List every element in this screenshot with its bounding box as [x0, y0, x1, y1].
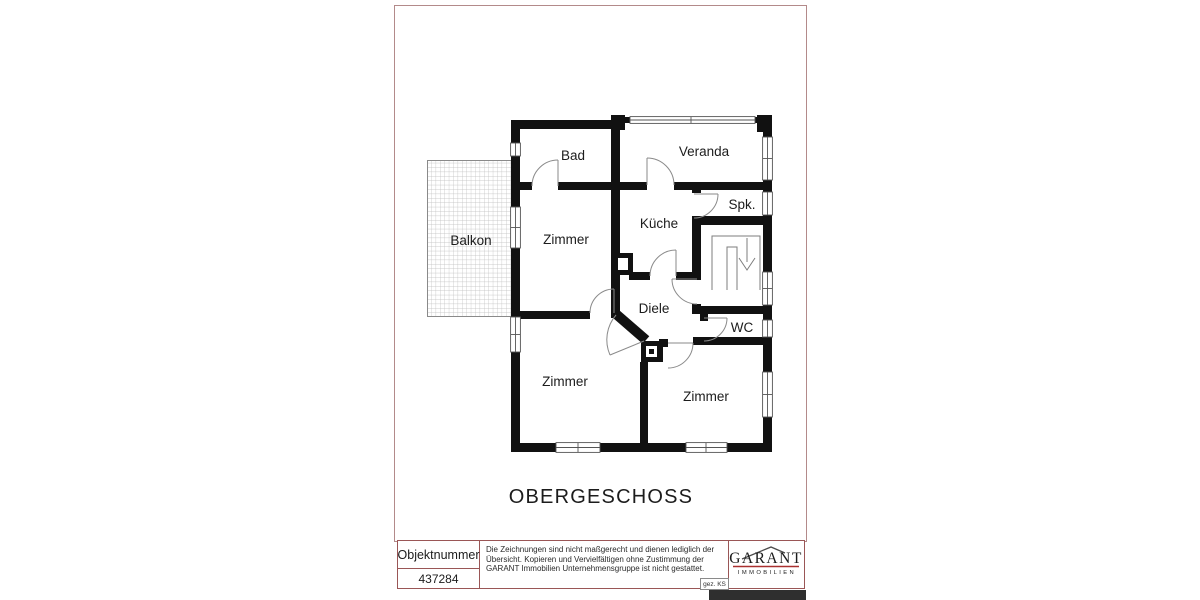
object-number-value: 437284 — [398, 569, 479, 588]
floor-title: OBERGESCHOSS — [509, 486, 693, 508]
room-label-kueche: Küche — [640, 216, 678, 231]
room-label-zimmer-2: Zimmer — [542, 374, 588, 389]
chimney-symbol — [641, 341, 663, 362]
room-label-zimmer-3: Zimmer — [683, 389, 729, 404]
garant-logo: GARANT IMMOBILIEN — [728, 544, 804, 586]
logo-subtitle: IMMOBILIEN — [738, 570, 796, 576]
room-label-balkon: Balkon — [450, 233, 491, 248]
title-block: Objektnummer 437284 Die Zeichnungen sind… — [397, 540, 805, 589]
object-number-label: Objektnummer — [398, 541, 479, 569]
chimney-symbol — [613, 253, 633, 275]
room-label-diele: Diele — [639, 301, 670, 316]
drawn-by-box: gez. KS — [700, 578, 729, 590]
room-label-wc: WC — [731, 320, 754, 335]
room-label-veranda: Veranda — [679, 144, 730, 159]
staircase-symbol — [712, 236, 760, 290]
room-label-spk: Spk. — [728, 197, 755, 212]
stair-arrow-icon — [739, 238, 755, 270]
inner-walls — [511, 117, 772, 452]
logo-cell: GARANT IMMOBILIEN — [728, 541, 804, 588]
room-label-bad: Bad — [561, 148, 585, 163]
disclaimer-cell: Die Zeichnungen sind nicht maßgerecht un… — [480, 541, 729, 588]
floor-plan: Bad Veranda Spk. Küche Zimmer Balkon Die… — [0, 0, 1200, 600]
scan-shadow — [709, 590, 806, 600]
object-number-cell: Objektnummer 437284 — [398, 541, 480, 588]
logo-name: GARANT — [729, 550, 803, 567]
disclaimer-text: Die Zeichnungen sind nicht maßgerecht un… — [486, 545, 722, 574]
room-label-zimmer-1: Zimmer — [543, 232, 589, 247]
